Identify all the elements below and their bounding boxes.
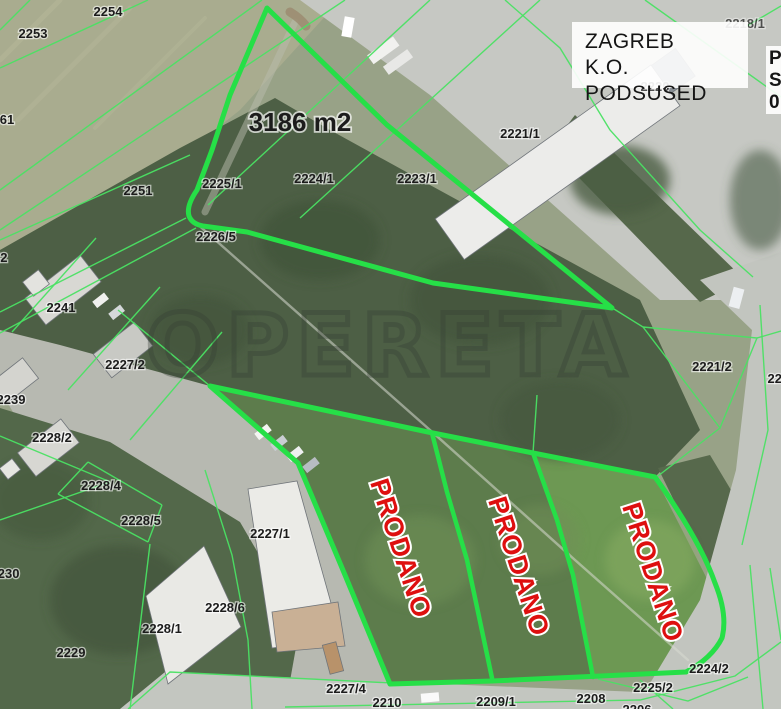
cadastral-line — [598, 677, 748, 701]
parcel-label: 2230 — [0, 566, 19, 581]
parcel-label: 2224/1 — [294, 171, 334, 186]
parcel-label: 2227/1 — [250, 526, 290, 541]
partial-info-line: S — [769, 70, 781, 92]
cadastral-line — [770, 568, 781, 640]
parcel-label: 2209/1 — [476, 694, 516, 709]
title-box: ZAGREB K.O. PODSUSED — [572, 22, 748, 88]
sold-label: PRODANO — [616, 499, 689, 646]
title-box-city: ZAGREB — [585, 29, 748, 55]
sold-label: PRODANO — [482, 493, 555, 640]
cadastral-line — [742, 305, 768, 545]
parcel-label: 2206 — [623, 702, 652, 709]
parcel-label: 2227/2 — [105, 357, 145, 372]
parcel-label: 2226/5 — [196, 229, 236, 244]
parcel-label: 2254 — [94, 4, 124, 19]
partial-info-line: P — [769, 48, 781, 70]
parcel-divider — [533, 453, 593, 677]
parcel-label: 61 — [0, 112, 14, 127]
cadastral-line — [533, 395, 537, 453]
parcel-label: 2228/6 — [205, 600, 245, 615]
cadastral-line — [614, 309, 643, 327]
cadastral-line — [12, 238, 96, 332]
cadastral-line — [68, 287, 160, 390]
cadastral-line — [658, 428, 720, 476]
cadastral-line — [205, 470, 252, 709]
cadastral-line — [750, 565, 763, 709]
cadastral-line — [0, 218, 186, 312]
parcel-label: 2225/2 — [633, 680, 673, 695]
parcel-label: 2228/2 — [32, 430, 72, 445]
cadastral-line — [643, 327, 757, 428]
parcel-label: 2228/1 — [142, 621, 182, 636]
parcel-label: 2221/1 — [500, 126, 540, 141]
parcel-label: 2223/1 — [397, 171, 437, 186]
area-label: 3186 m2 — [249, 107, 352, 137]
parcel-label: 2227/4 — [326, 681, 367, 696]
parcel-label: 2251 — [124, 183, 153, 198]
parcel-label: 2241 — [47, 300, 76, 315]
parcel-boundary-3186[interactable] — [188, 8, 612, 308]
parcel-label: 2228/5 — [121, 513, 161, 528]
parcel-label: 2225/1 — [202, 176, 242, 191]
cadastral-line — [757, 331, 781, 338]
parcel-divider — [432, 433, 492, 678]
sold-label: PRODANO — [364, 475, 437, 622]
parcel-label: 2224/2 — [689, 661, 729, 676]
parcel-label: 2229 — [57, 645, 86, 660]
partial-info-box: P S 0 — [766, 46, 781, 114]
partial-info-line: 0 — [769, 92, 781, 114]
parcel-label: 2228/4 — [81, 478, 122, 493]
cadastral-line — [118, 310, 210, 386]
cadastral-line — [0, 155, 190, 240]
map-canvas[interactable]: 22542253612218/1222022512225/12224/12223… — [0, 0, 781, 709]
parcel-label: 2208 — [577, 691, 606, 706]
title-box-municipality: K.O. PODSUSED — [585, 55, 748, 107]
parcel-label: 2210 — [373, 695, 402, 709]
parcel-label: 2222 — [768, 371, 781, 386]
parcel-label: 2253 — [19, 26, 48, 41]
cadastral-line — [0, 228, 196, 333]
parcel-label: 2221/2 — [692, 359, 732, 374]
parcel-label: 2242 — [0, 250, 7, 265]
parcel-label: 2239 — [0, 392, 25, 407]
